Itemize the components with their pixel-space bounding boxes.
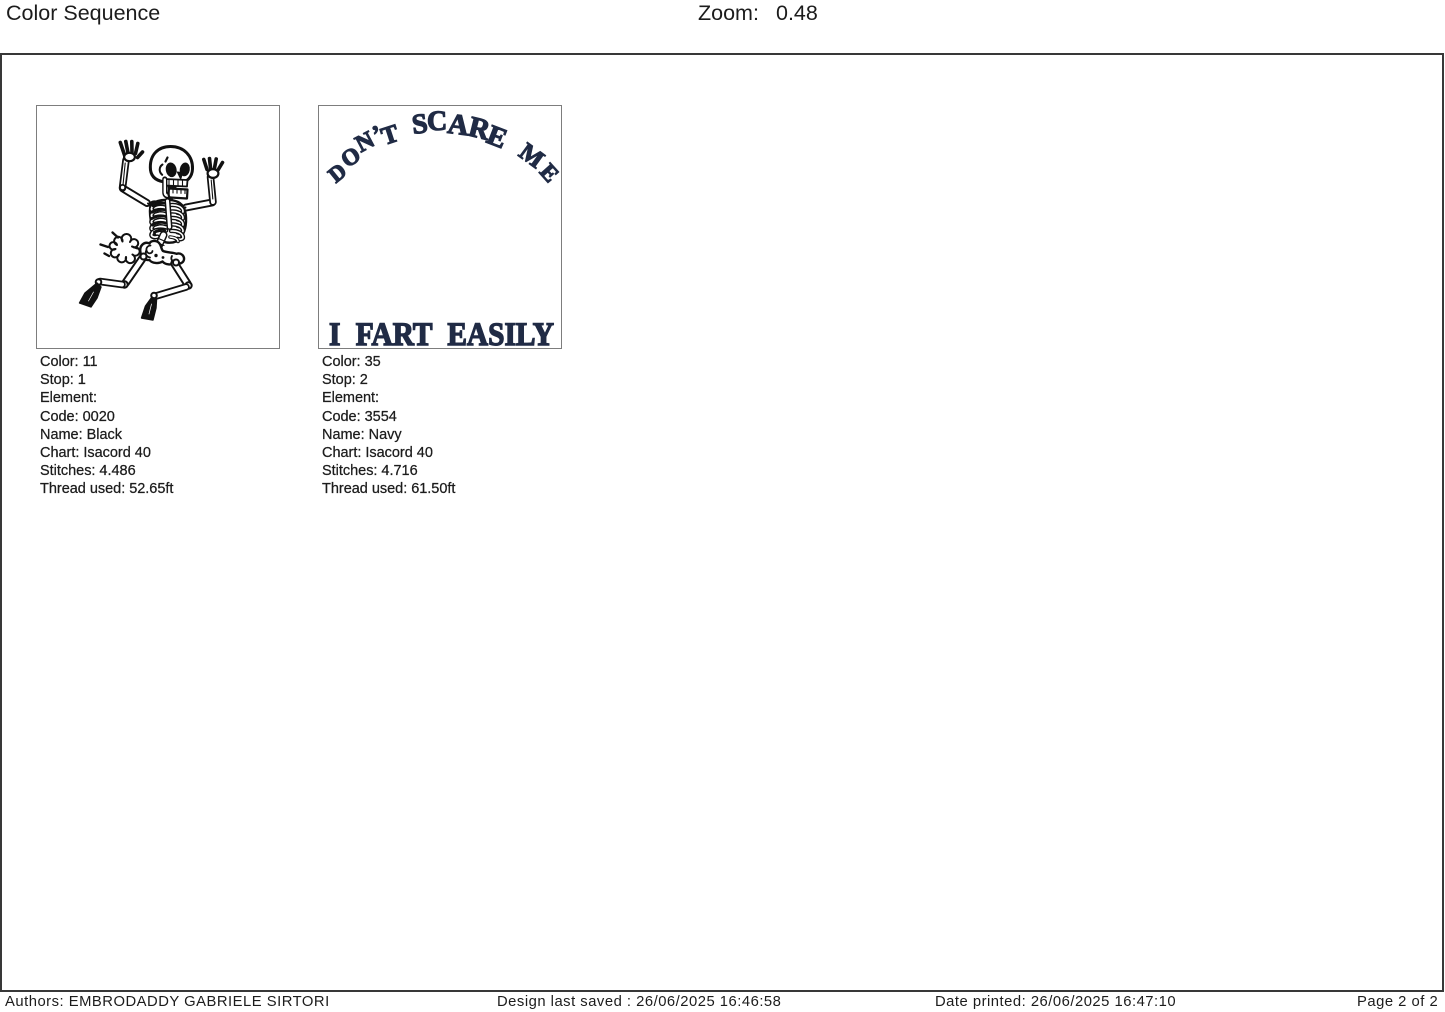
svg-text:I FART EASILY: I FART EASILY — [329, 317, 554, 348]
svg-text:C: C — [427, 106, 448, 137]
